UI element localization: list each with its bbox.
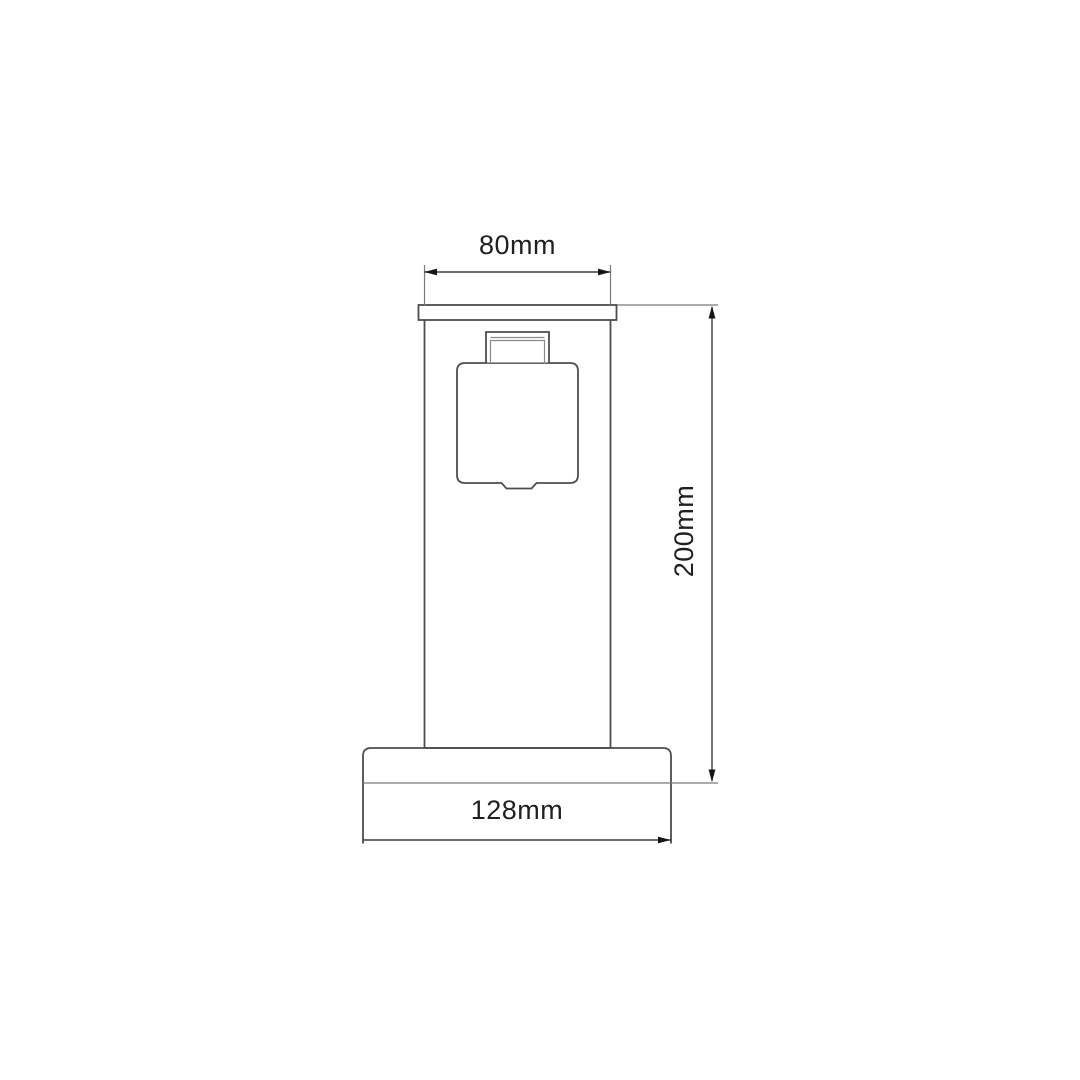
dim-label-top-width: 80mm <box>424 230 611 260</box>
dim-200-arrow-bottom-icon <box>709 770 716 783</box>
dim-label-base-width: 128mm <box>363 795 671 825</box>
top-cap <box>419 305 617 320</box>
dimension-drawing: 80mm 200mm 128mm <box>0 0 1080 1080</box>
dim-80-arrow-left-icon <box>425 269 438 276</box>
drawing-canvas <box>0 0 1080 1080</box>
dim-200-arrow-top-icon <box>709 306 716 319</box>
dim-80-arrow-right-icon <box>598 269 611 276</box>
dim-label-height: 200mm <box>669 456 699 606</box>
socket-lid <box>457 363 578 489</box>
dim-128-arrow-right-icon <box>658 837 671 844</box>
